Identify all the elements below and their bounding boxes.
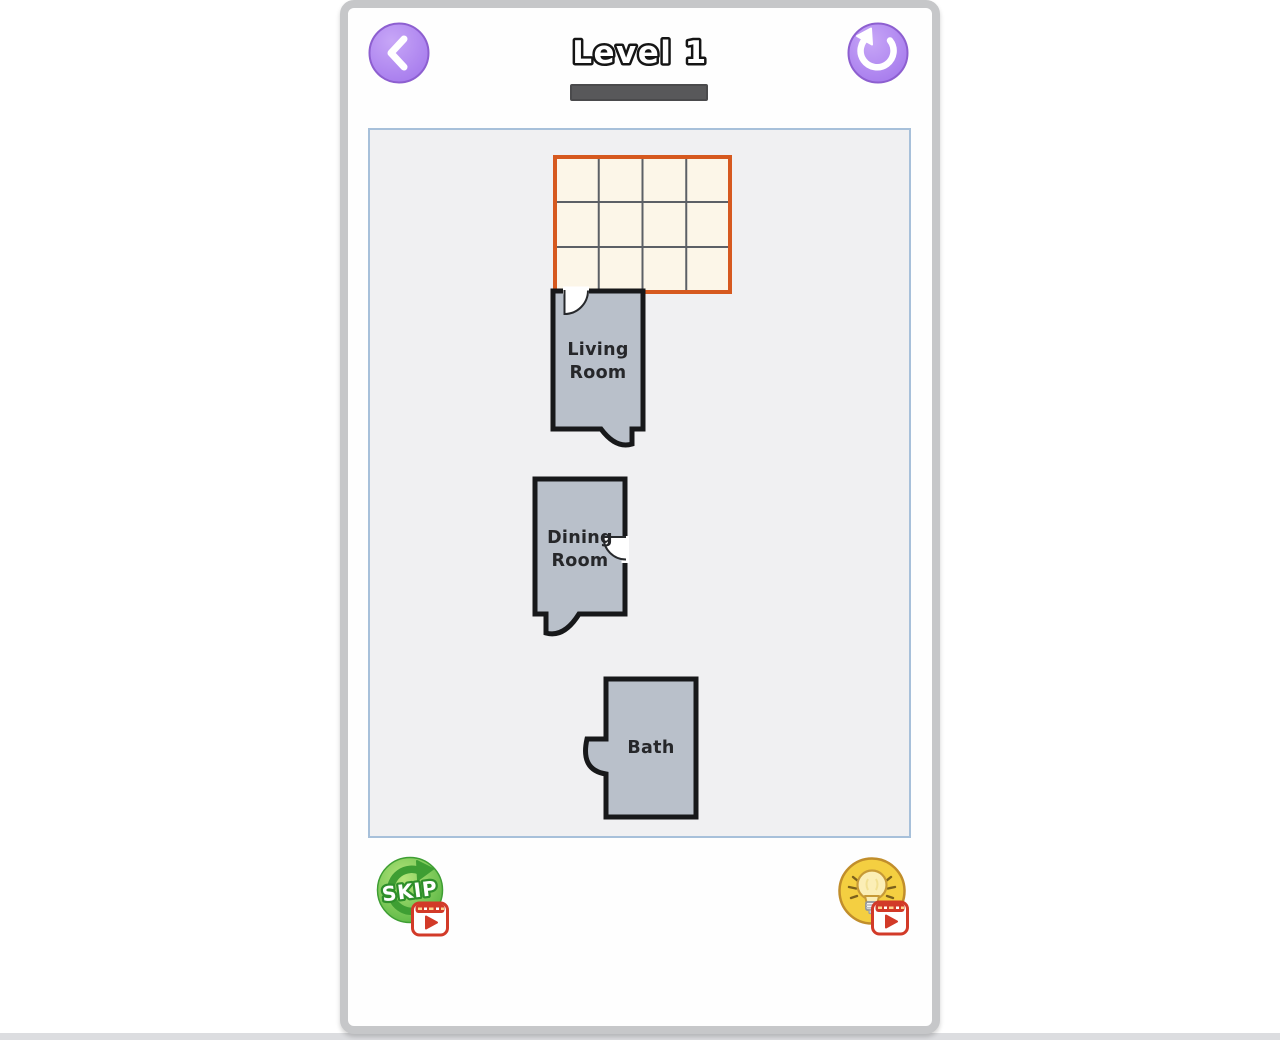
living-room-label-line1: Living <box>567 340 628 360</box>
bath-piece[interactable]: Bath <box>586 679 696 817</box>
dining-room-label-line1: Dining <box>547 528 613 548</box>
undo-arrow-icon <box>847 22 909 84</box>
app-screen: Level 1 <box>0 0 1280 1040</box>
target-grid[interactable] <box>555 157 730 292</box>
dining-room-label-line2: Room <box>552 551 609 571</box>
hint-button[interactable] <box>838 857 906 925</box>
living-room-label-line2: Room <box>570 363 627 383</box>
restart-button[interactable] <box>847 22 909 84</box>
living-room-piece[interactable]: Living Room <box>553 287 643 446</box>
video-ad-badge-icon <box>871 899 909 937</box>
level-progress-bar <box>570 84 708 101</box>
back-button[interactable] <box>368 22 430 84</box>
level-title-text: Level 1 <box>572 35 708 71</box>
chevron-left-icon <box>368 22 430 84</box>
play-area: Living Room Dining Room Bath <box>368 128 911 838</box>
page-bottom-strip <box>0 1033 1280 1040</box>
skip-button[interactable]: SKIP <box>376 856 444 924</box>
bath-label: Bath <box>627 738 674 758</box>
video-ad-badge-icon <box>411 900 449 938</box>
level-title: Level 1 <box>540 31 740 79</box>
dining-room-piece[interactable]: Dining Room <box>535 479 629 634</box>
